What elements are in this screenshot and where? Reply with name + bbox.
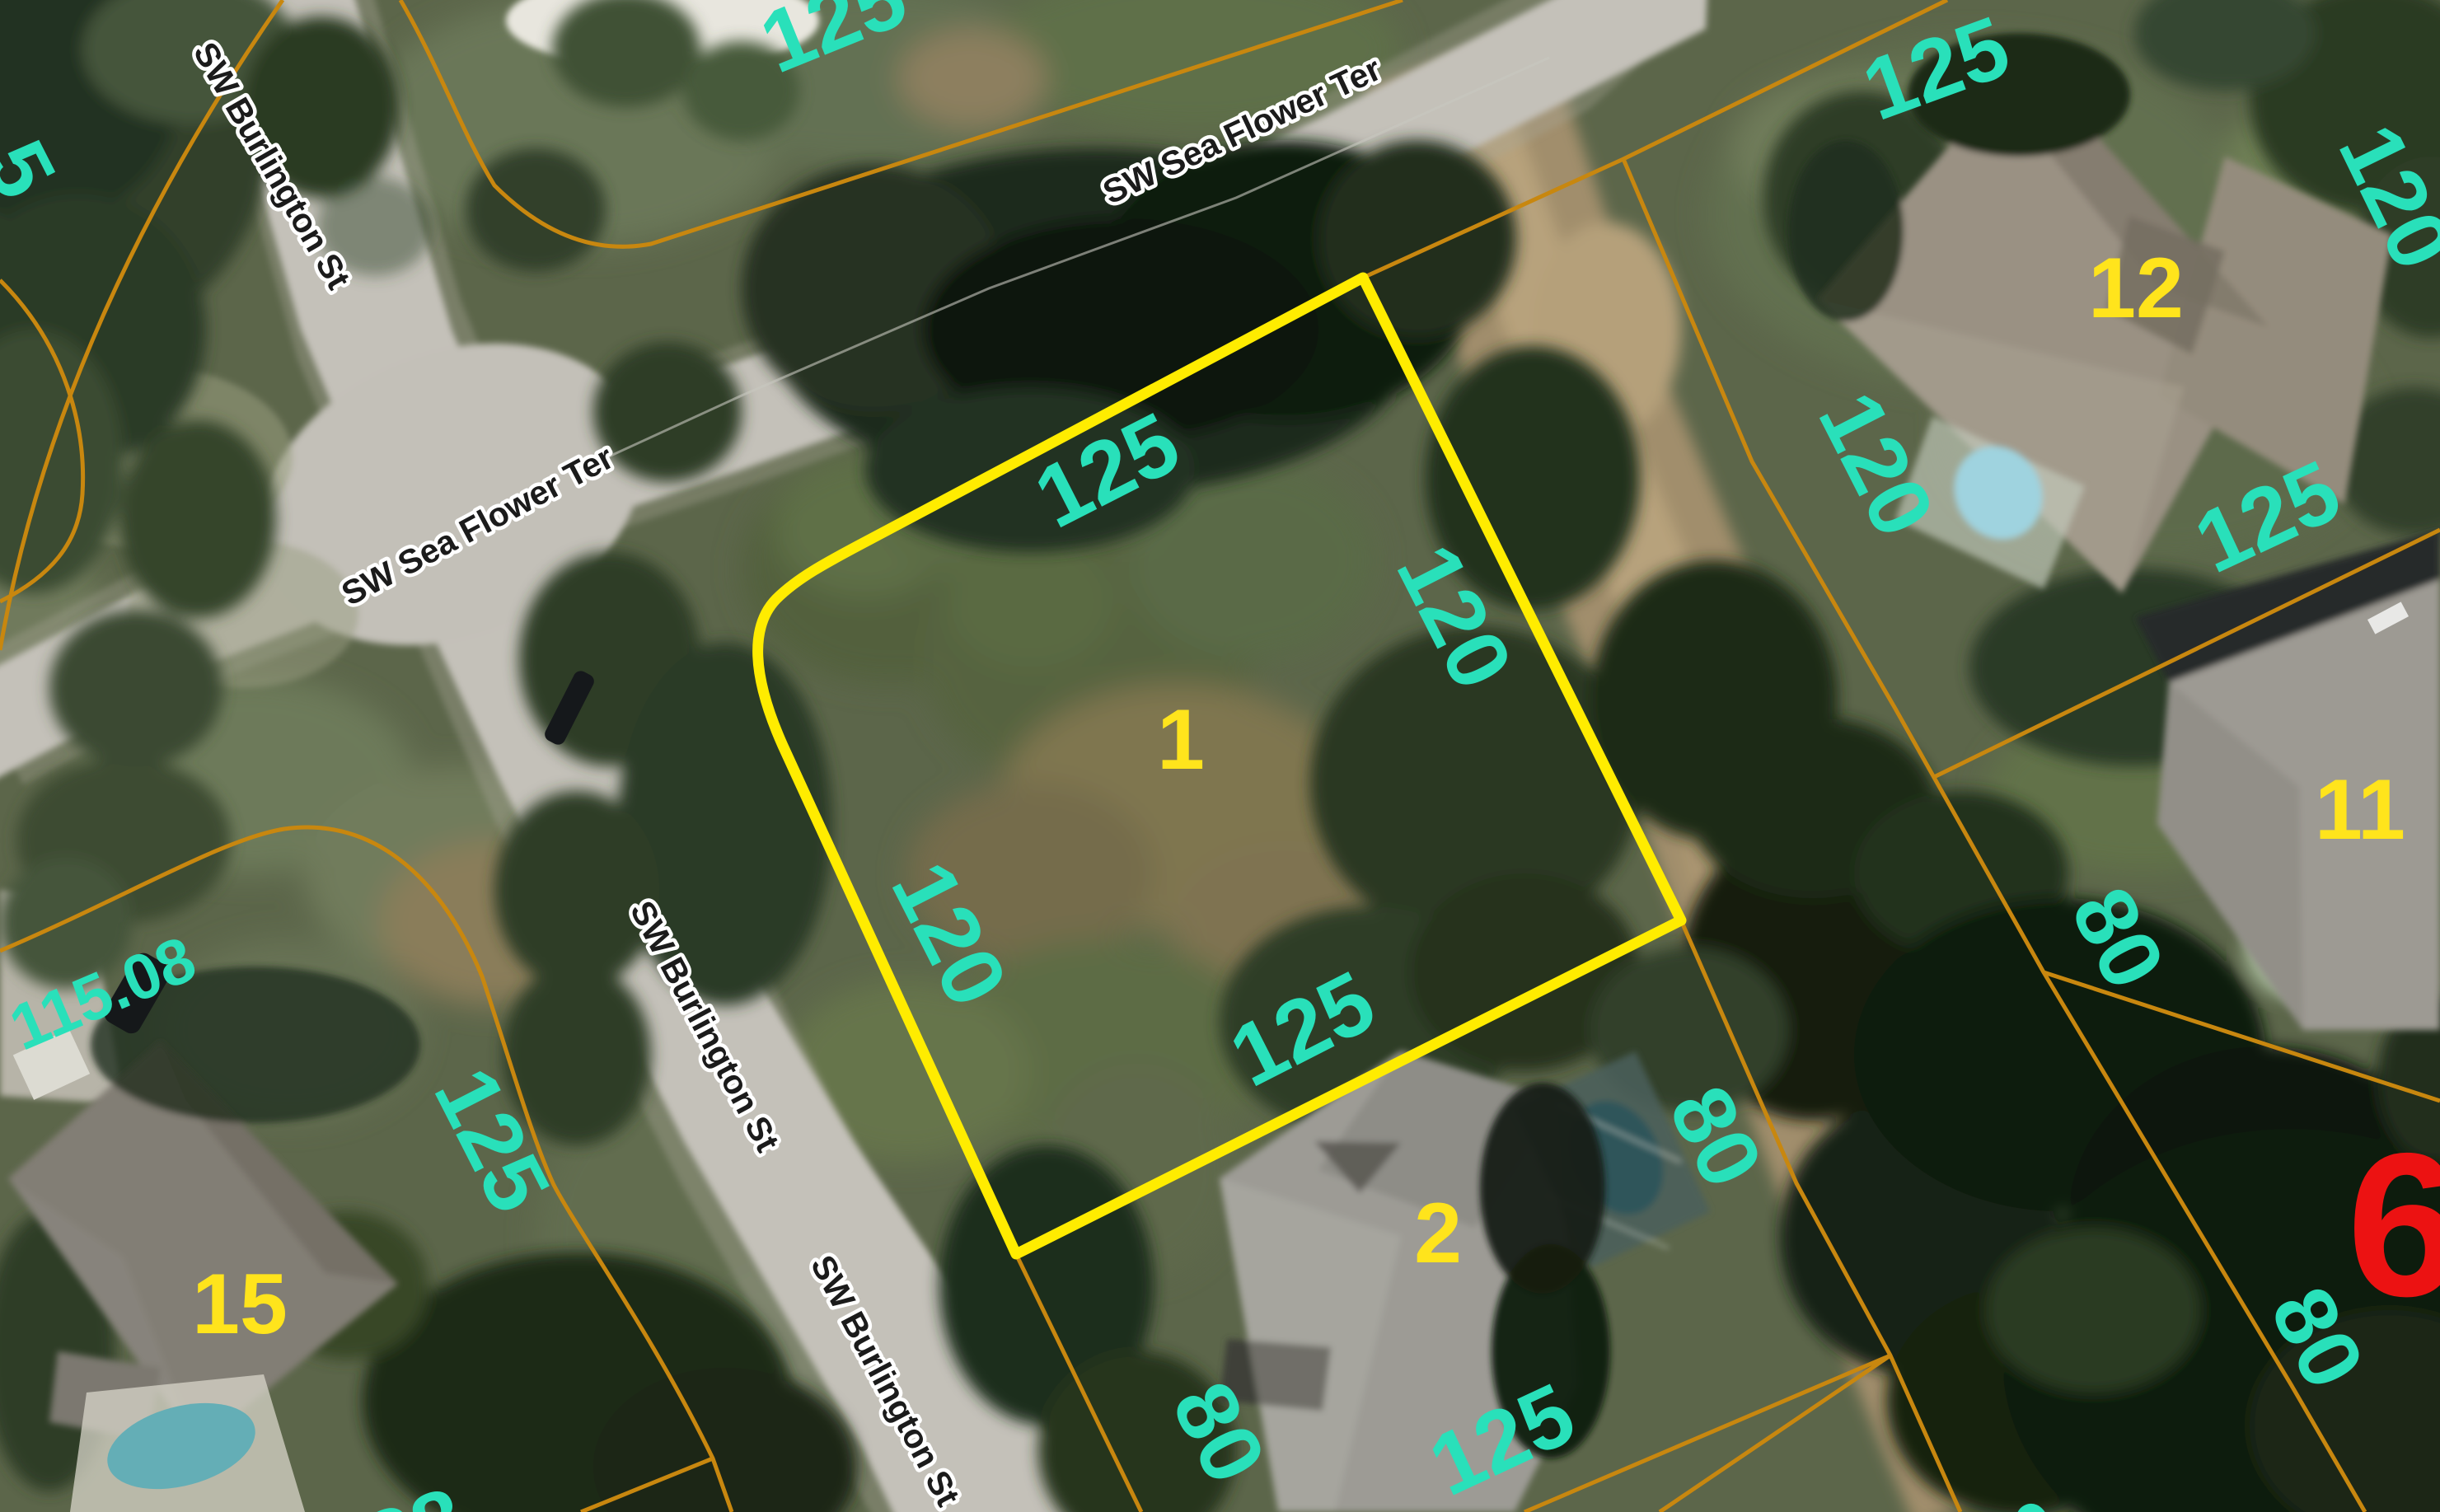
svg-text:1: 1 — [1157, 692, 1205, 788]
svg-text:66: 66 — [2347, 1110, 2440, 1339]
svg-text:11: 11 — [2315, 762, 2405, 858]
svg-text:15: 15 — [192, 1257, 288, 1352]
svg-text:2: 2 — [1414, 1186, 1462, 1281]
svg-text:12: 12 — [2088, 241, 2184, 336]
